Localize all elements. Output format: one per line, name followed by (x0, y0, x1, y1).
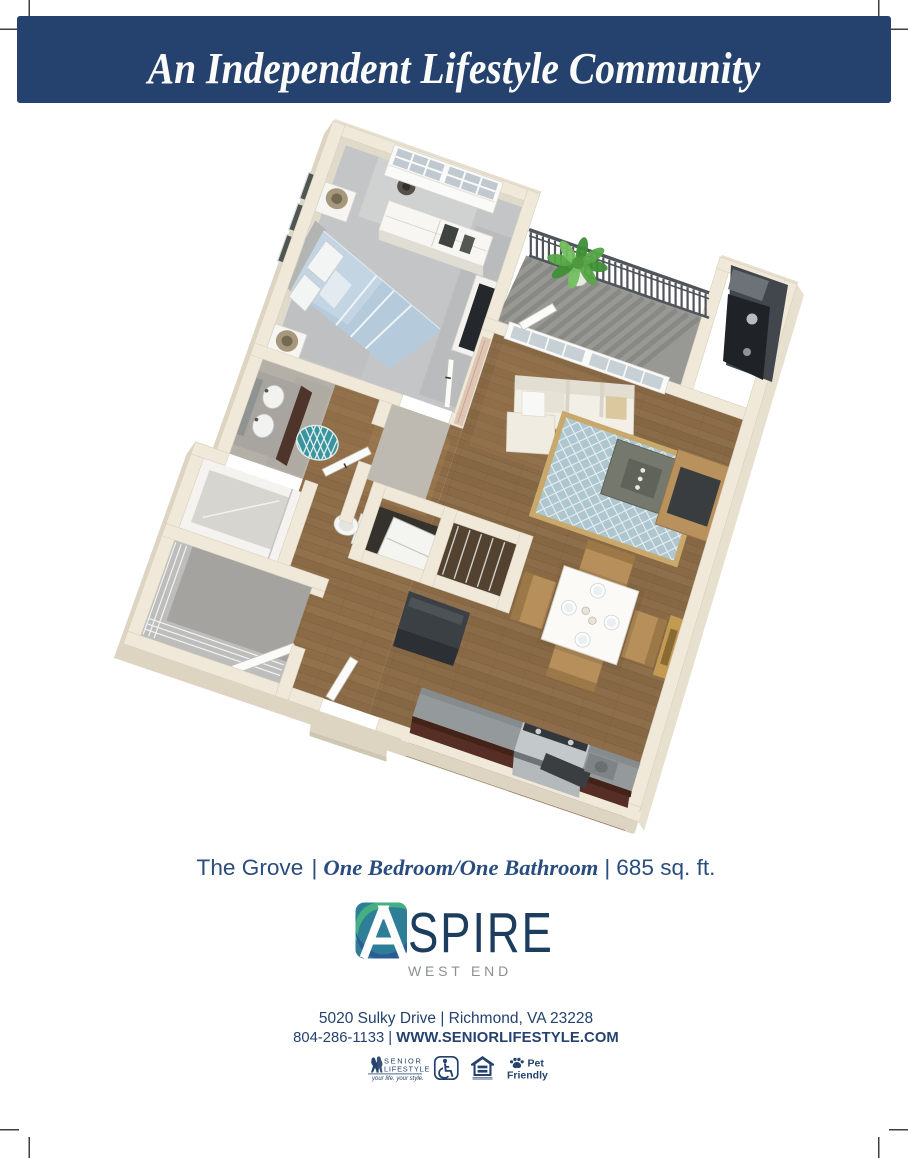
svg-text:Pet: Pet (528, 1058, 545, 1070)
svg-text:Friendly: Friendly (507, 1070, 548, 1082)
svg-text:The Grove |One Bedroom/One Bat: The Grove |One Bedroom/One Bathroom|685 … (197, 855, 716, 880)
svg-text:LIFESTYLE: LIFESTYLE (384, 1065, 430, 1074)
svg-text:5020 Sulky Drive | Richmond, V: 5020 Sulky Drive | Richmond, VA 23228 (319, 1010, 593, 1027)
svg-text:SPIRE: SPIRE (408, 900, 554, 964)
svg-text:your life. your style.: your life. your style. (371, 1076, 424, 1082)
svg-text:An Independent Lifestyle Commu: An Independent Lifestyle Community (145, 45, 761, 93)
svg-text:804-286-1133 | WWW.SENIORLIFES: 804-286-1133 | WWW.SENIORLIFESTYLE.COM (293, 1030, 619, 1046)
svg-text:WEST END: WEST END (408, 963, 512, 979)
